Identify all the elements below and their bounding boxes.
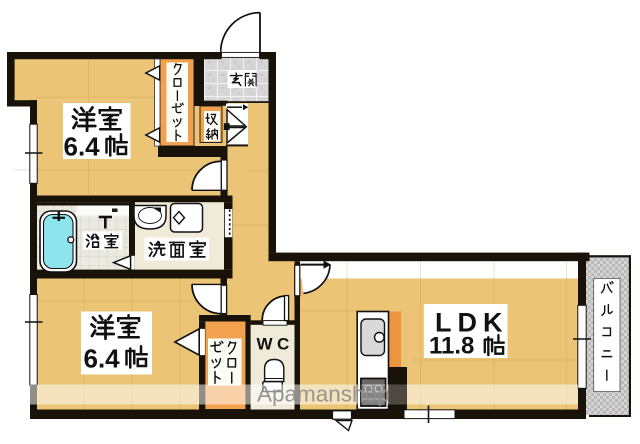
svg-text:Apamanshop: Apamanshop (257, 382, 390, 407)
svg-text:6.4: 6.4 (84, 344, 121, 374)
svg-text:6.4: 6.4 (64, 132, 101, 162)
svg-text:WC: WC (257, 335, 294, 354)
svg-text:11.8: 11.8 (429, 333, 474, 360)
